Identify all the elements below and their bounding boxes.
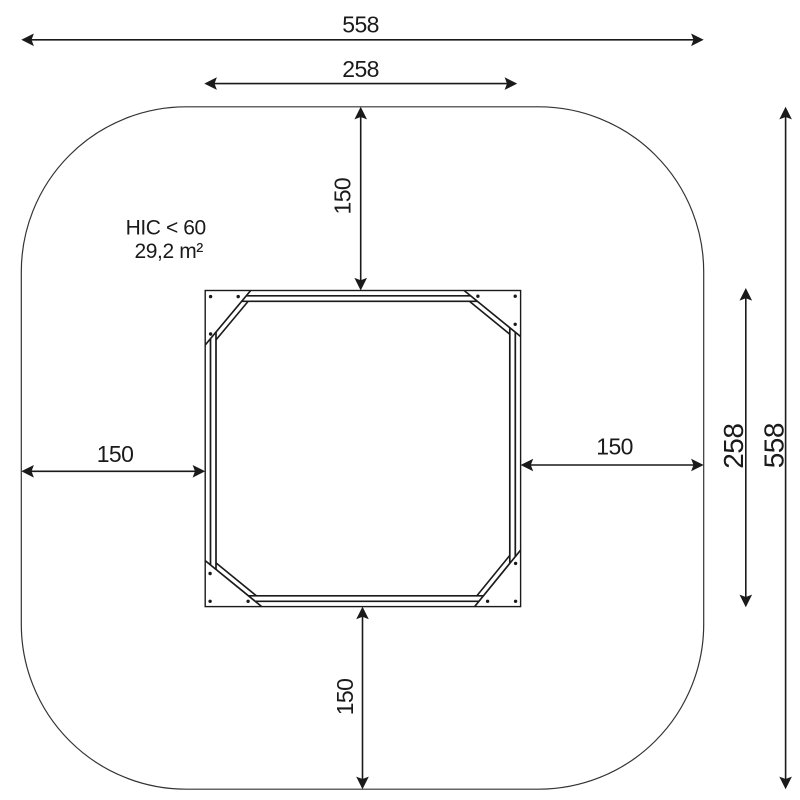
svg-text:150: 150 bbox=[330, 178, 356, 215]
svg-text:150: 150 bbox=[97, 441, 134, 467]
svg-text:150: 150 bbox=[596, 434, 633, 460]
svg-text:258: 258 bbox=[718, 424, 749, 469]
svg-text:29,2 m²: 29,2 m² bbox=[134, 240, 203, 263]
svg-text:558: 558 bbox=[342, 12, 379, 38]
svg-text:558: 558 bbox=[759, 423, 790, 468]
svg-text:258: 258 bbox=[342, 56, 379, 82]
svg-text:150: 150 bbox=[332, 679, 358, 716]
svg-text:HIC < 60: HIC < 60 bbox=[126, 217, 206, 240]
